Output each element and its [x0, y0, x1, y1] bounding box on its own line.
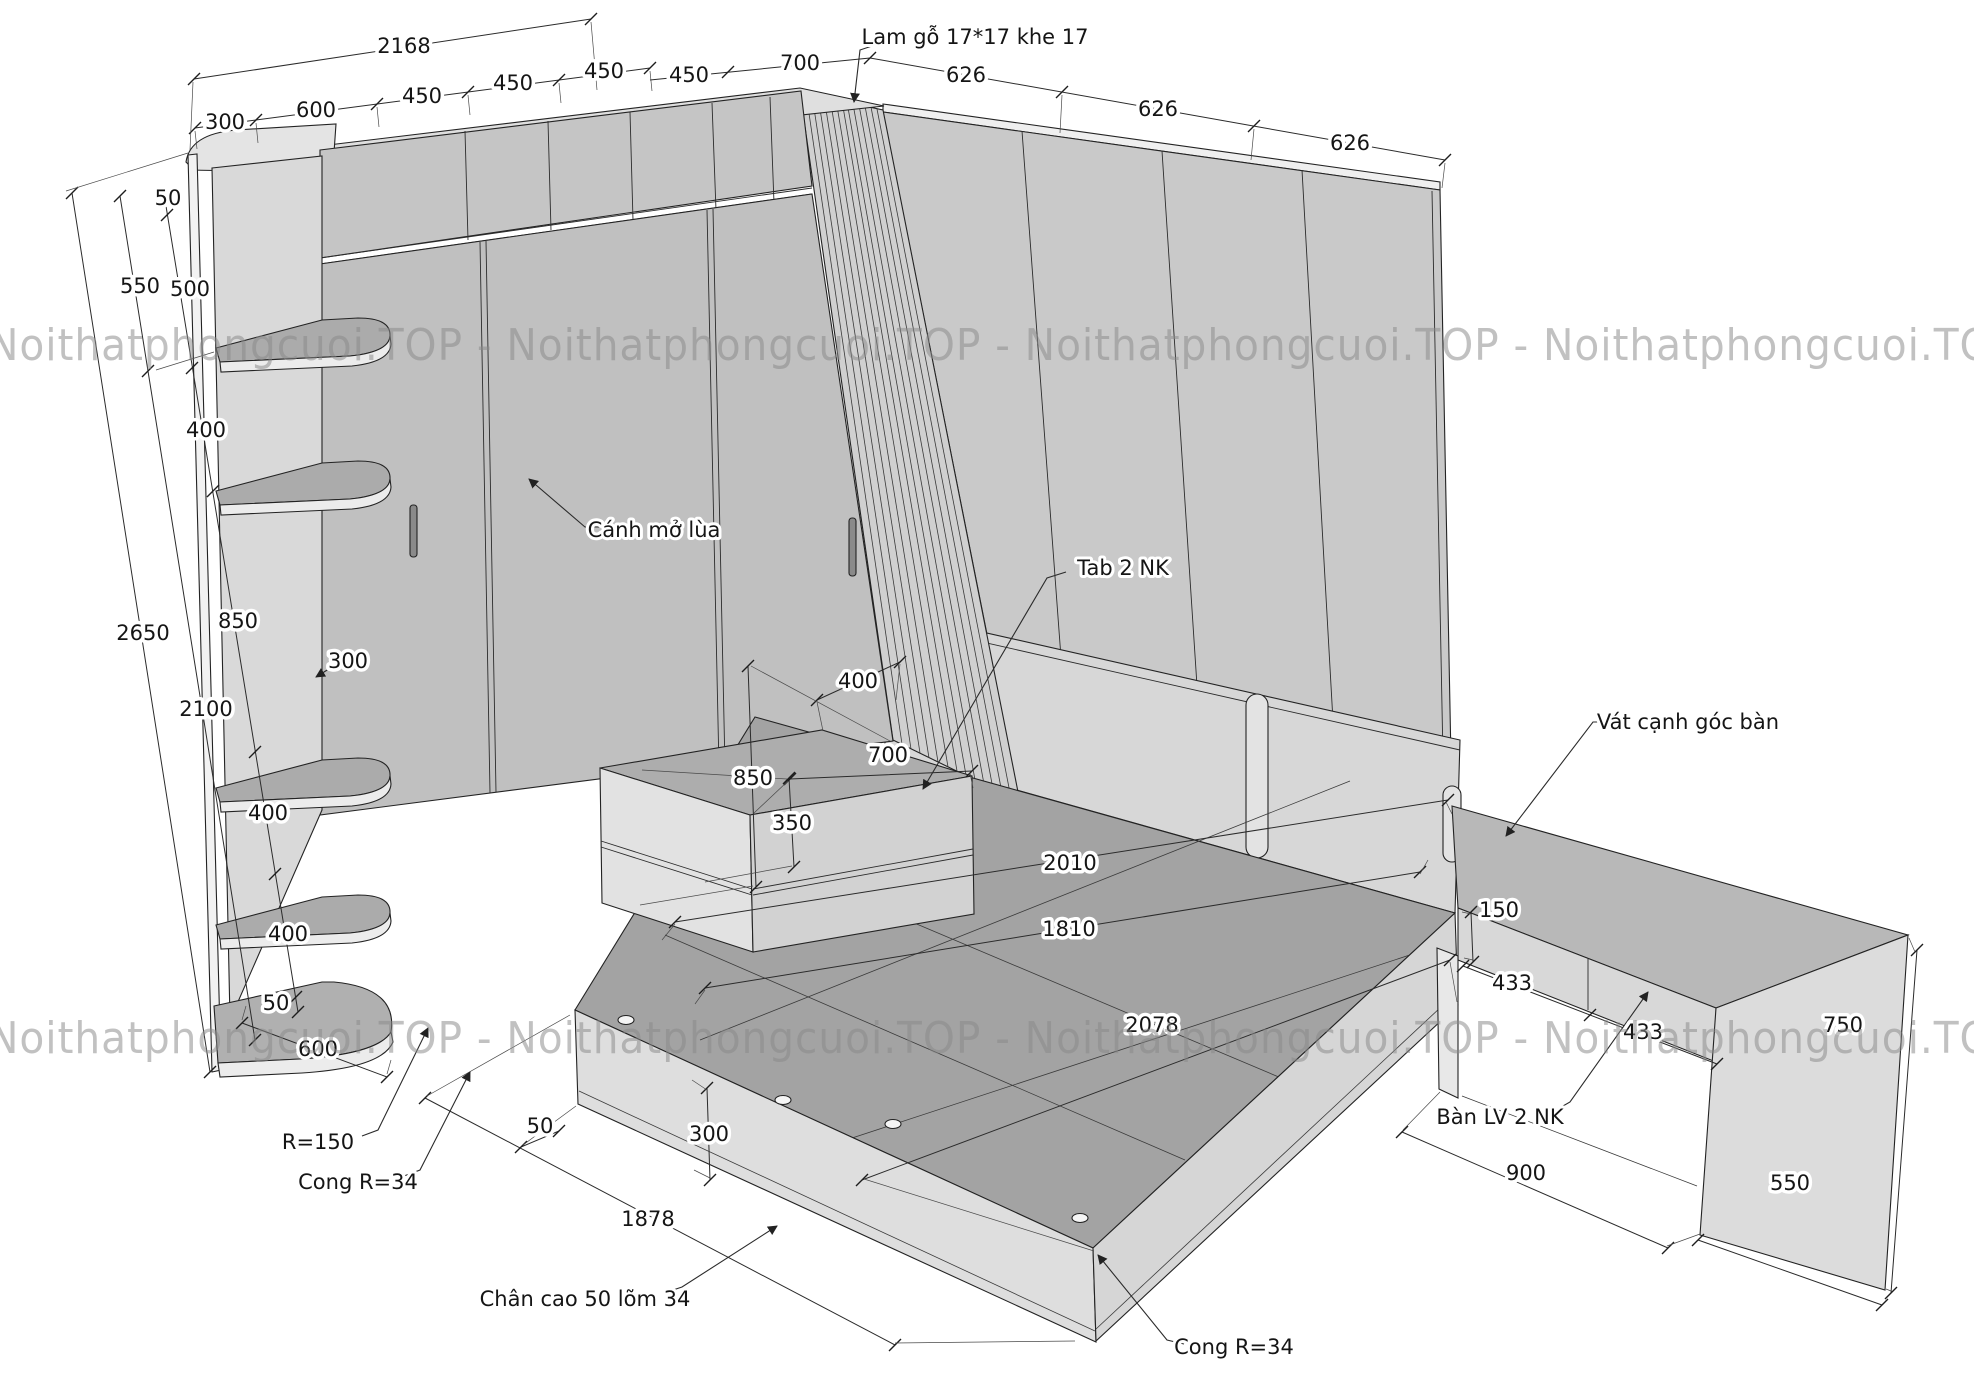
label-chan-cao: Chân cao 50 lõm 34: [480, 1287, 691, 1311]
dim-tab-700: 700: [868, 743, 908, 767]
dim-tab-400: 400: [838, 669, 878, 693]
bed-screw-hole: [1072, 1214, 1088, 1223]
door-handle-left: [410, 505, 417, 557]
label-vat-canh-goc-ban: Vát cạnh góc bàn: [1597, 710, 1779, 734]
dim-bed-300: 300: [689, 1122, 729, 1146]
watermark-row-2: Noithatphongcuoi.TOP - Noithatphongcuoi.…: [0, 1013, 1974, 1064]
dim-top-626a: 626: [946, 63, 986, 87]
dim-top-450b: 450: [493, 71, 533, 95]
dim-bed-1878: 1878: [621, 1207, 674, 1231]
dim-left-550: 550: [120, 274, 160, 298]
bed-screw-hole: [885, 1120, 901, 1129]
bed-screw-hole: [775, 1096, 791, 1105]
dim-left-2100: 2100: [179, 697, 232, 721]
dim-top-626c: 626: [1330, 131, 1370, 155]
dim-bed-1810: 1810: [1042, 917, 1095, 941]
label-tab-2nk: Tab 2 NK: [1076, 556, 1170, 580]
dim-top-450a: 450: [402, 84, 442, 108]
watermark-row-1: Noithatphongcuoi.TOP - Noithatphongcuoi.…: [0, 320, 1974, 371]
dim-top-450c: 450: [584, 59, 624, 83]
dim-bed-50: 50: [527, 1114, 554, 1138]
dim-left-500: 500: [170, 277, 210, 301]
dim-left-400b: 400: [248, 801, 288, 825]
dim-left-400c: 400: [268, 922, 308, 946]
dim-top-626b: 626: [1138, 97, 1178, 121]
dim-desk-150: 150: [1479, 898, 1519, 922]
label-cong-r34-shelf: Cong R=34: [298, 1170, 418, 1194]
cad-drawing-canvas: 2168 300 600 450 450 450 450 700 626 626…: [0, 0, 1974, 1400]
dim-top-450d: 450: [669, 63, 709, 87]
dim-left-50-top: 50: [155, 186, 182, 210]
leader-chan-cao: [664, 1226, 777, 1293]
dim-tab-350: 350: [772, 811, 812, 835]
dim-desk-433a: 433: [1492, 971, 1532, 995]
nightstand: [600, 730, 974, 952]
label-lam-go: Lam gỗ 17*17 khe 17: [862, 24, 1089, 49]
dim-left-850: 850: [218, 609, 258, 633]
dim-top-overall: 2168: [377, 34, 430, 58]
door-handle-right: [849, 518, 856, 576]
furniture-drawing: 2168 300 600 450 450 450 450 700 626 626…: [0, 0, 1974, 1400]
dim-bed-2010: 2010: [1043, 851, 1096, 875]
dim-top-700: 700: [780, 51, 820, 75]
label-r150: R=150: [282, 1130, 354, 1154]
dim-desk-900: 900: [1506, 1161, 1546, 1185]
dim-tab-850: 850: [733, 766, 773, 790]
leader-cong-r34-shelf: [404, 1072, 470, 1176]
dim-left-2650: 2650: [116, 621, 169, 645]
dim-top-600: 600: [296, 98, 336, 122]
sliding-doors-face: [320, 194, 893, 815]
dim-left-300: 300: [328, 649, 368, 673]
dim-left-50-bottom: 50: [263, 991, 290, 1015]
headboard-cushion-bar: [1246, 694, 1268, 858]
label-cong-r34-bed: Cong R=34: [1174, 1335, 1294, 1359]
dim-top-300: 300: [205, 110, 245, 134]
leader-vat-canh: [1506, 722, 1610, 836]
label-ban-lv-2nk: Bàn LV 2 NK: [1436, 1105, 1564, 1129]
dim-left-400a: 400: [186, 418, 226, 442]
label-canh-mo-lua: Cánh mở lùa: [588, 518, 721, 542]
dim-desk-550: 550: [1770, 1171, 1810, 1195]
